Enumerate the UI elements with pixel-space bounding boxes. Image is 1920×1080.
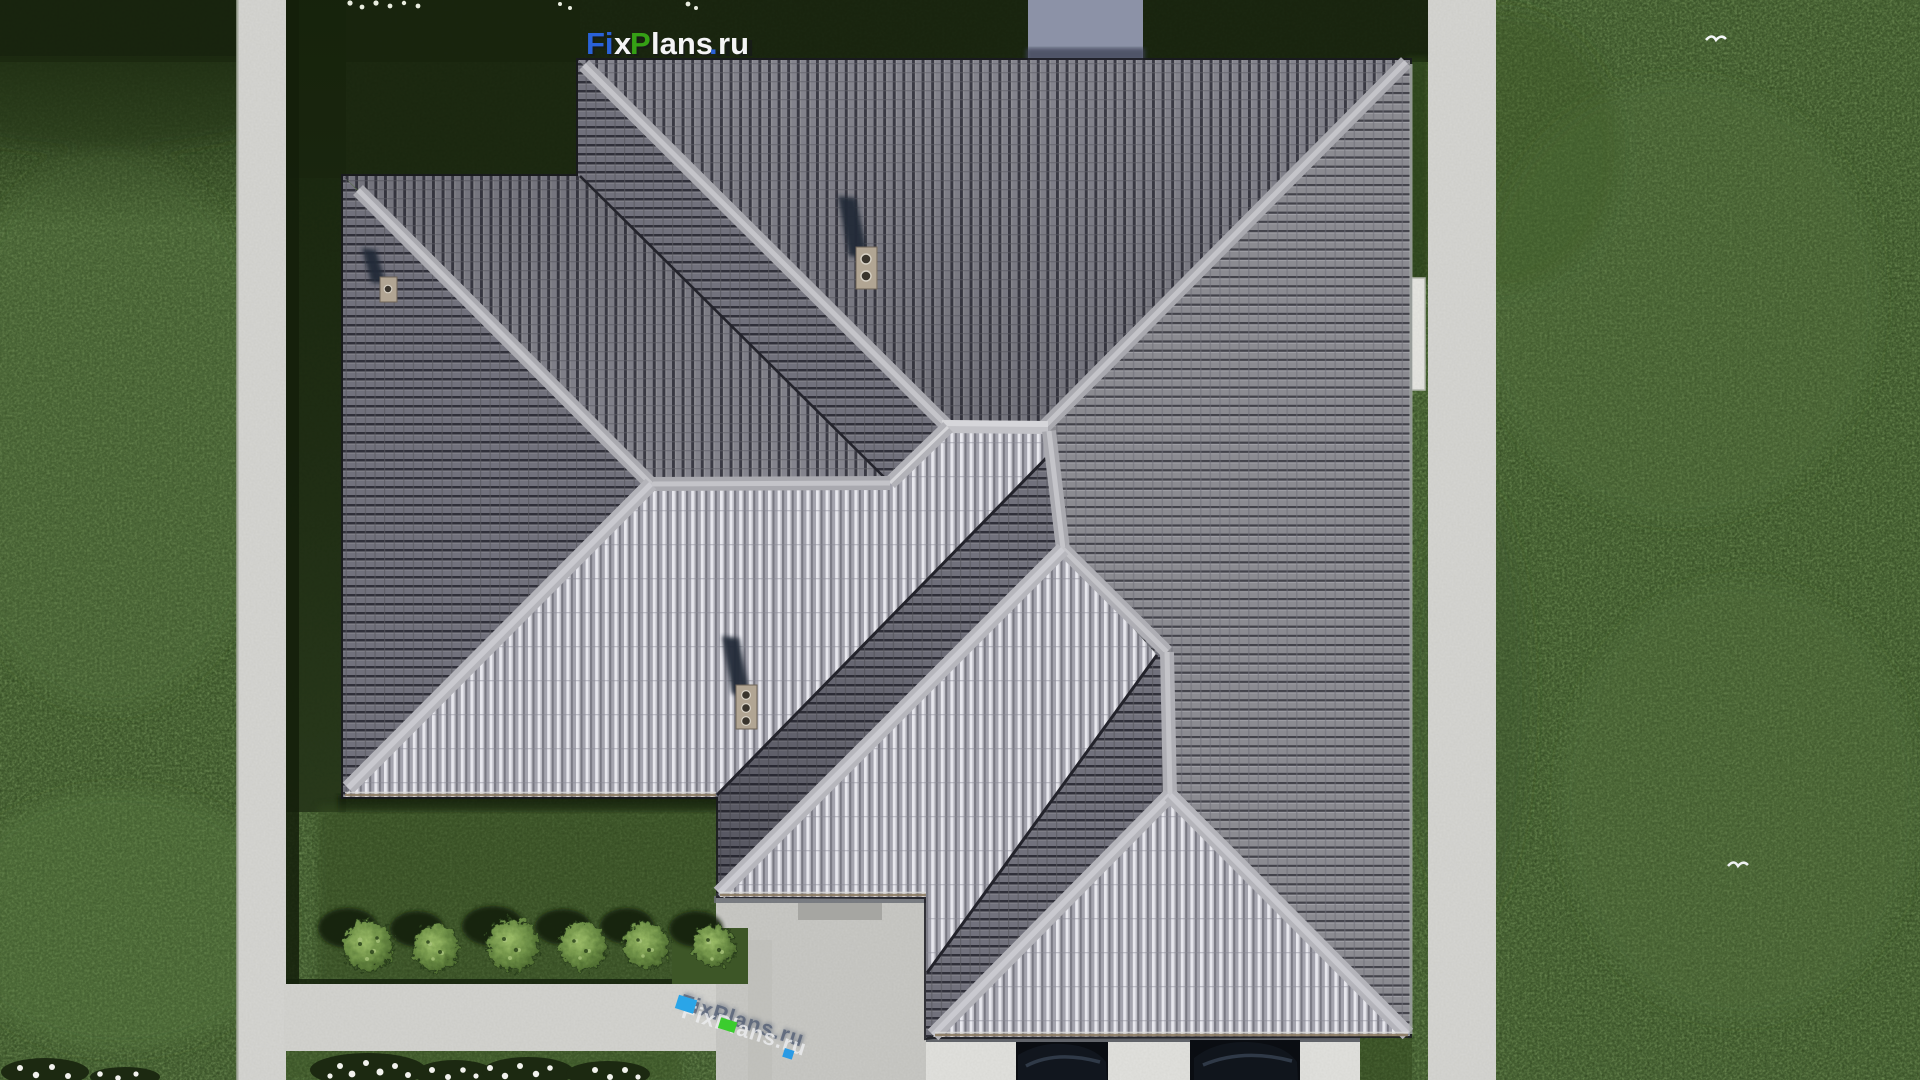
svg-text:ru: ru: [718, 26, 749, 61]
svg-text:.: .: [709, 26, 718, 61]
svg-text:Fi: Fi: [586, 26, 614, 61]
svg-text:lans: lans: [651, 26, 713, 61]
svg-text:P: P: [630, 26, 651, 61]
